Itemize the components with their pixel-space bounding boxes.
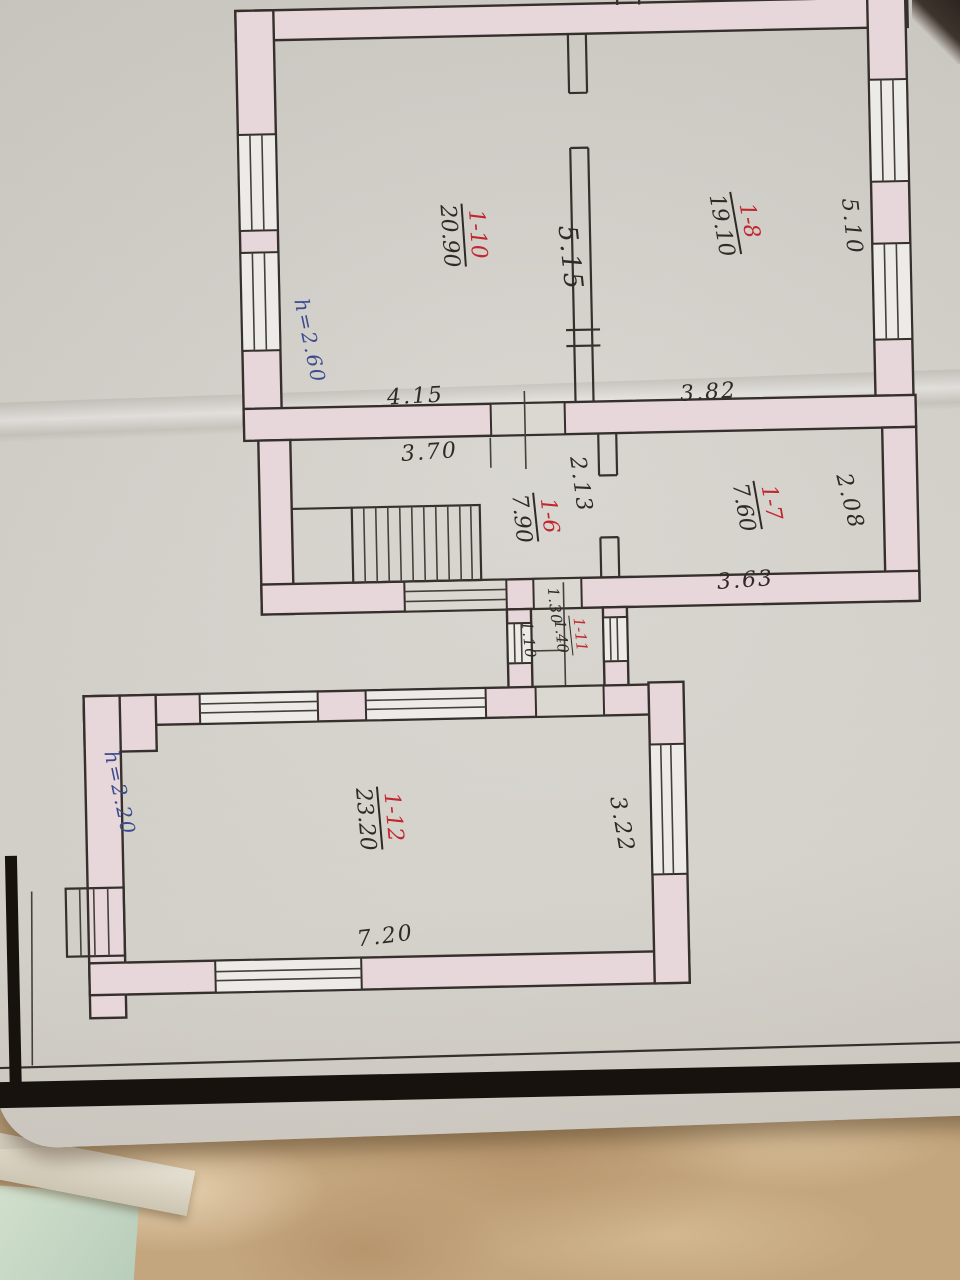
room-label-1-11: 1-11 1.40: [550, 614, 589, 657]
dim-5-15: 5.15: [552, 224, 589, 293]
room-number: 1-10: [460, 202, 490, 267]
dim-1-10: 1.10: [518, 620, 540, 659]
dim-3-22: 3.22: [604, 794, 639, 854]
photo-of-floor-plan: 1-10 20.90 5.15 1-8 19.10 5.10 h=2.60 4.…: [0, 0, 960, 1280]
dim-4-15: 4.15: [386, 383, 444, 411]
room-label-1-10: 1-10 20.90: [434, 202, 491, 268]
dim-5-10: 5.10: [836, 197, 867, 256]
dim-3-70: 3.70: [400, 438, 459, 467]
room-area: 7.90: [506, 493, 537, 544]
room-label-1-12: 1-12 23.20: [350, 785, 408, 852]
dim-2-13: 2.13: [564, 455, 597, 515]
table-visible-at-corner: [912, 0, 960, 64]
room-label-1-7: 1-7 7.60: [726, 477, 786, 534]
room-area: 20.90: [434, 204, 465, 269]
room-number: 1-6: [532, 490, 563, 541]
dim-2-08: 2.08: [830, 471, 868, 532]
dim-3-82: 3.82: [679, 378, 738, 407]
dim-3-63: 3.63: [716, 566, 775, 595]
room-area: 23.20: [350, 787, 382, 852]
height-note-upper: h=2.60: [289, 296, 330, 385]
room-label-1-8: 1-8 19.10: [703, 188, 766, 259]
room-label-1-6: 1-6 7.90: [506, 490, 563, 544]
height-note-lower: h=2.20: [99, 748, 140, 837]
dim-7-20: 7.20: [356, 921, 416, 953]
plan-labels: 1-10 20.90 5.15 1-8 19.10 5.10 h=2.60 4.…: [0, 0, 960, 1280]
